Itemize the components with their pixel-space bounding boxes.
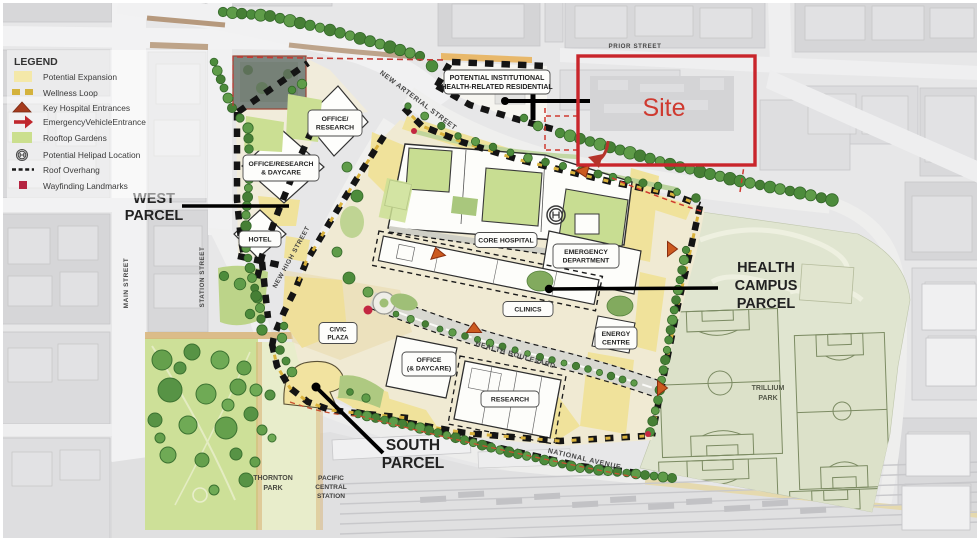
svg-text:CIVIC: CIVIC [329, 326, 346, 333]
svg-text:PARK: PARK [758, 395, 777, 402]
svg-text:PARCEL: PARCEL [737, 296, 796, 312]
svg-text:Rooftop Gardens: Rooftop Gardens [43, 133, 107, 143]
svg-text:LEGEND: LEGEND [14, 56, 58, 68]
svg-text:STATION STREET: STATION STREET [199, 247, 206, 308]
svg-text:& DAYCARE: & DAYCARE [261, 170, 301, 177]
svg-text:PARCEL: PARCEL [382, 455, 445, 472]
svg-text:DEPARTMENT: DEPARTMENT [563, 258, 611, 265]
svg-text:EmergencyVehicleEntrance: EmergencyVehicleEntrance [43, 117, 146, 127]
svg-text:Potential Helipad Location: Potential Helipad Location [43, 150, 141, 160]
svg-text:Site: Site [642, 94, 685, 122]
svg-text:CLINICS: CLINICS [514, 306, 542, 313]
svg-text:OFFICE: OFFICE [417, 357, 442, 364]
svg-text:CAMPUS: CAMPUS [735, 278, 798, 294]
svg-text:ENERGY: ENERGY [602, 331, 631, 338]
svg-text:Wayfinding Landmarks: Wayfinding Landmarks [43, 181, 128, 191]
svg-text:OFFICE/: OFFICE/ [322, 116, 349, 123]
svg-text:Roof Overhang: Roof Overhang [43, 165, 100, 175]
svg-text:(& DAYCARE): (& DAYCARE) [407, 366, 451, 373]
svg-text:RESEARCH: RESEARCH [316, 125, 354, 132]
svg-text:STATION: STATION [317, 493, 345, 500]
svg-text:PLAZA: PLAZA [327, 334, 349, 341]
svg-text:HEALTH-RELATED RESIDENTIAL: HEALTH-RELATED RESIDENTIAL [441, 84, 553, 91]
svg-text:Key Hospital Entrances: Key Hospital Entrances [43, 103, 130, 113]
svg-text:CENTRAL: CENTRAL [315, 484, 347, 491]
svg-text:SOUTH: SOUTH [386, 437, 440, 454]
svg-text:EMERGENCY: EMERGENCY [564, 249, 608, 256]
svg-text:TRILLIUM: TRILLIUM [752, 385, 785, 392]
svg-text:HOTEL: HOTEL [248, 236, 271, 243]
svg-text:PARCEL: PARCEL [125, 208, 184, 224]
svg-text:POTENTIAL INSTITUTIONAL: POTENTIAL INSTITUTIONAL [450, 75, 545, 82]
svg-text:THORNTON: THORNTON [253, 475, 293, 482]
svg-text:MAIN STREET: MAIN STREET [123, 258, 130, 309]
svg-text:CORE HOSPITAL: CORE HOSPITAL [478, 237, 533, 244]
svg-text:PACIFIC: PACIFIC [318, 475, 344, 482]
svg-text:RESEARCH: RESEARCH [491, 396, 529, 403]
svg-text:PRIOR STREET: PRIOR STREET [609, 43, 662, 50]
svg-text:Potential Expansion: Potential Expansion [43, 72, 117, 82]
svg-text:HEALTH: HEALTH [737, 260, 795, 276]
svg-text:OFFICE/RESEARCH: OFFICE/RESEARCH [249, 161, 314, 168]
svg-text:PARK: PARK [263, 485, 282, 492]
svg-text:Wellness Loop: Wellness Loop [43, 88, 98, 98]
svg-text:CENTRE: CENTRE [602, 340, 630, 347]
